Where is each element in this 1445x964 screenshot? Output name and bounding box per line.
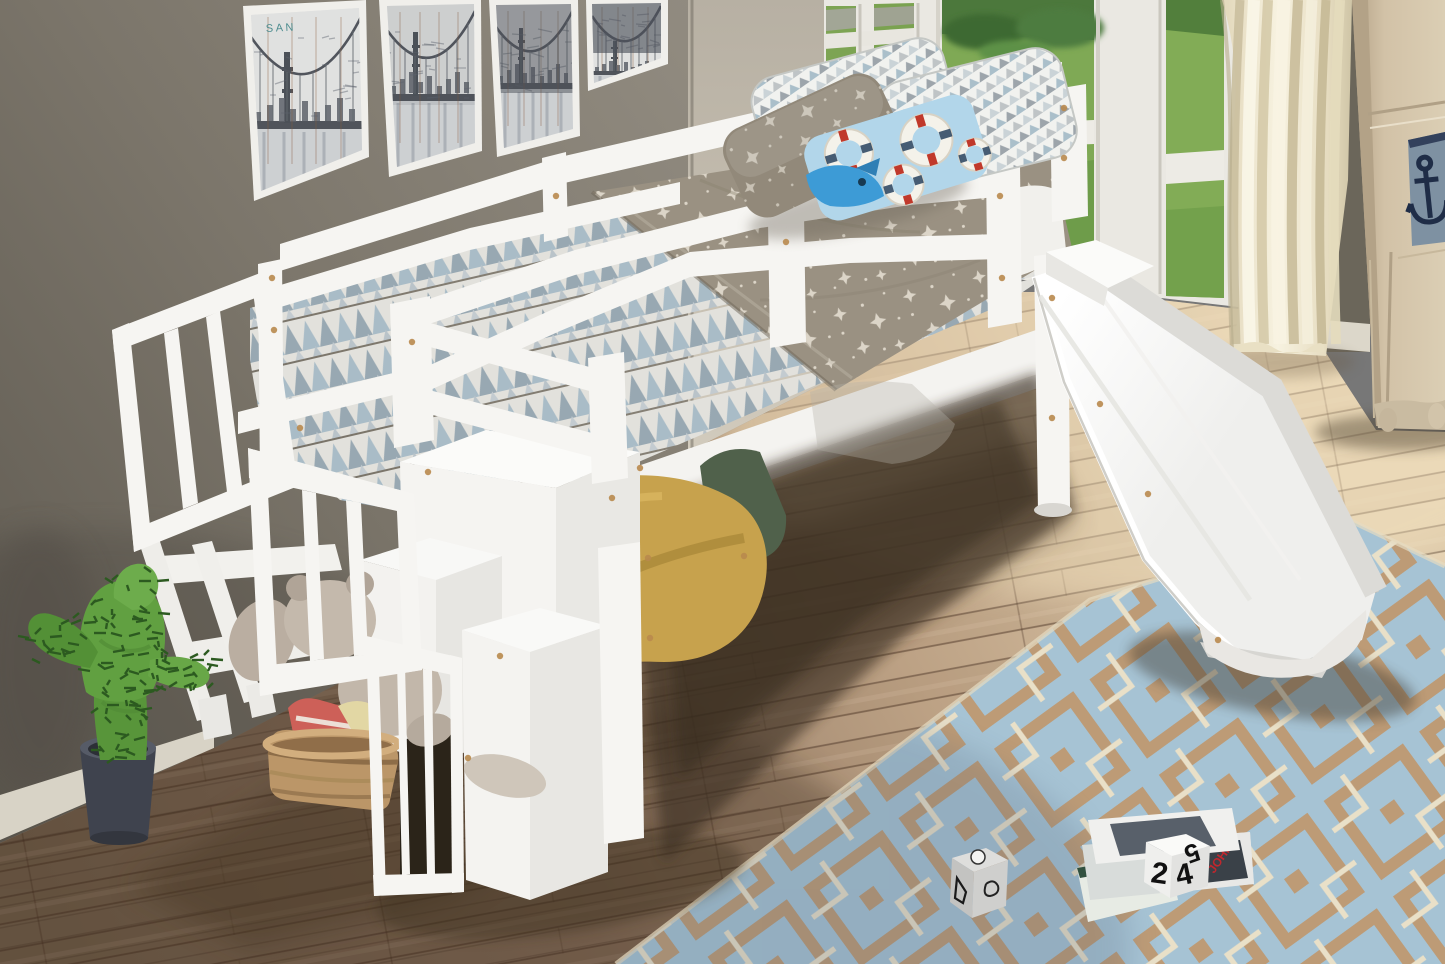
svg-text:SAN: SAN (266, 21, 297, 35)
